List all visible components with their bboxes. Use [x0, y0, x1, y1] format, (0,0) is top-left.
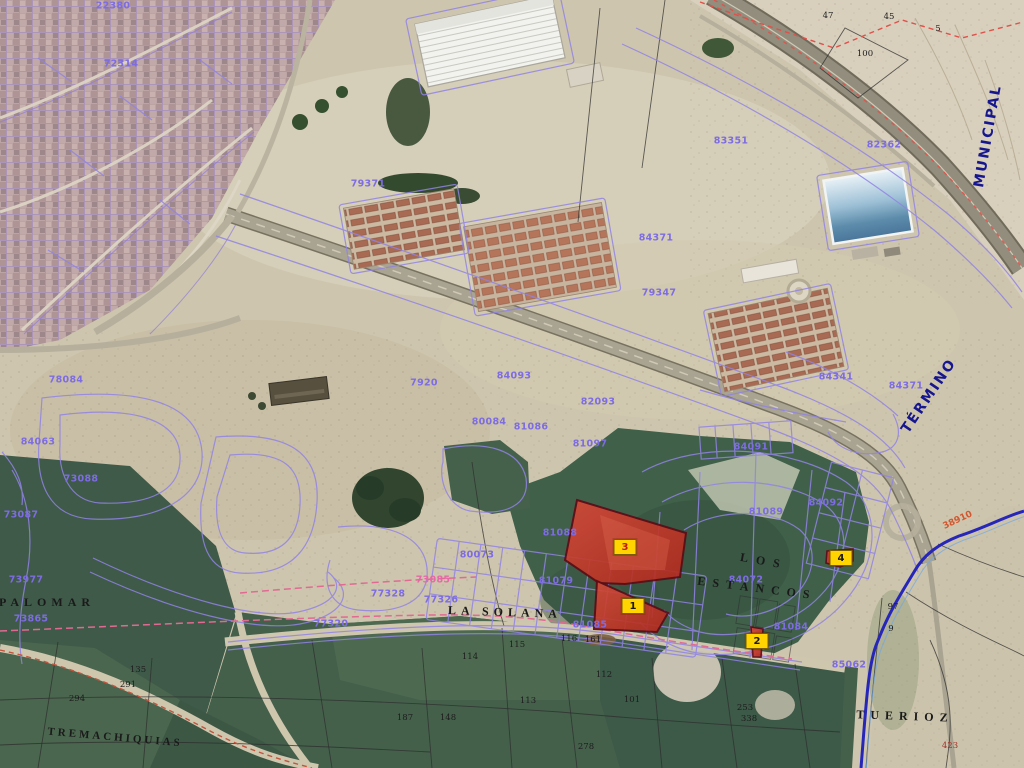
cadastral-parcel-number: 77328: [371, 589, 406, 599]
cadastral-parcel-number: 84371: [889, 381, 924, 391]
cadastral-parcel-number: 81079: [539, 576, 574, 586]
field-number: 5: [935, 25, 940, 34]
field-number: 114: [462, 653, 478, 662]
field-number: 101: [624, 696, 640, 705]
field-number: 338: [741, 715, 757, 724]
field-number: 135: [130, 666, 146, 675]
field-number: 115: [509, 641, 525, 650]
municipal-boundary-label: MUNICIPAL: [972, 83, 1004, 188]
cadastral-parcel-number: 81097: [573, 439, 608, 449]
parcel-marker-1[interactable]: 1: [622, 598, 645, 614]
parcel-marker-4[interactable]: 4: [830, 550, 853, 566]
cadastral-parcel-number: 72314: [104, 59, 139, 69]
cadastral-parcel-number: 82362: [867, 140, 902, 150]
cadastral-parcel-number: 78084: [49, 375, 84, 385]
cadastral-parcel-number: 84371: [639, 233, 674, 243]
cadastral-parcel-number: 84341: [819, 372, 854, 382]
cadastral-map-viewport[interactable]: 2238072314833518236279371843717934784341…: [0, 0, 1024, 768]
field-number: 291: [120, 681, 136, 690]
field-number: 187: [397, 714, 413, 723]
field-number: 278: [578, 743, 594, 752]
cadastral-parcel-number: 81085: [573, 620, 608, 630]
cadastral-parcel-number: 79347: [642, 288, 677, 298]
place-name-label: LOS: [739, 551, 788, 571]
cadastral-parcel-number: 77320: [314, 619, 349, 629]
field-number: 97: [888, 603, 899, 612]
field-number: 100: [857, 50, 873, 59]
cadastral-parcel-number: 84091: [734, 442, 769, 452]
cadastral-parcel-number: 7920: [410, 378, 438, 388]
field-number: 9: [888, 625, 893, 634]
field-number: 47: [823, 12, 834, 21]
cadastral-parcel-number: 73865: [14, 614, 49, 624]
cadastral-parcel-number: 79371: [351, 179, 386, 189]
cadastral-parcel-number: 81084: [774, 622, 809, 632]
municipal-boundary-label: TÉRMINO: [899, 356, 959, 436]
field-number: 148: [440, 714, 456, 723]
cadastral-parcel-number: 81086: [514, 422, 549, 432]
cadastral-parcel-number: 73088: [64, 474, 99, 484]
parcel-marker-3[interactable]: 3: [614, 539, 637, 555]
place-name-label: PALOMAR: [0, 596, 95, 608]
place-name-label: TUERIOZ: [856, 708, 954, 723]
field-number: 45: [884, 13, 895, 22]
field-number: 294: [69, 695, 85, 704]
cadastral-parcel-number: 85062: [832, 660, 867, 670]
field-number: 113: [520, 697, 536, 706]
place-name-label: TREMACHIQUIAS: [47, 727, 183, 750]
cadastral-parcel-number-pink: 73085: [416, 575, 451, 585]
field-number: 161: [585, 636, 601, 645]
field-number: 423: [942, 742, 958, 751]
map-labels-layer: 2238072314833518236279371843717934784341…: [0, 0, 1024, 768]
cadastral-parcel-number: 80084: [472, 417, 507, 427]
cadastral-parcel-number: 84093: [497, 371, 532, 381]
cadastral-parcel-number: 22380: [96, 1, 131, 11]
cadastral-parcel-number: 73087: [4, 510, 39, 520]
road-number-label: 38910: [942, 510, 974, 531]
cadastral-parcel-number: 84063: [21, 437, 56, 447]
cadastral-parcel-number: 82093: [581, 397, 616, 407]
cadastral-parcel-number: 81088: [543, 528, 578, 538]
field-number: 116: [561, 635, 577, 644]
cadastral-parcel-number: 84092: [809, 498, 844, 508]
field-number: 253: [737, 704, 753, 713]
cadastral-parcel-number: 73977: [9, 575, 44, 585]
parcel-marker-2[interactable]: 2: [746, 633, 769, 649]
field-number: 112: [596, 671, 612, 680]
cadastral-parcel-number: 80073: [460, 550, 495, 560]
cadastral-parcel-number: 83351: [714, 136, 749, 146]
cadastral-parcel-number: 81089: [749, 507, 784, 517]
place-name-label: LA SOLANA: [448, 604, 562, 620]
